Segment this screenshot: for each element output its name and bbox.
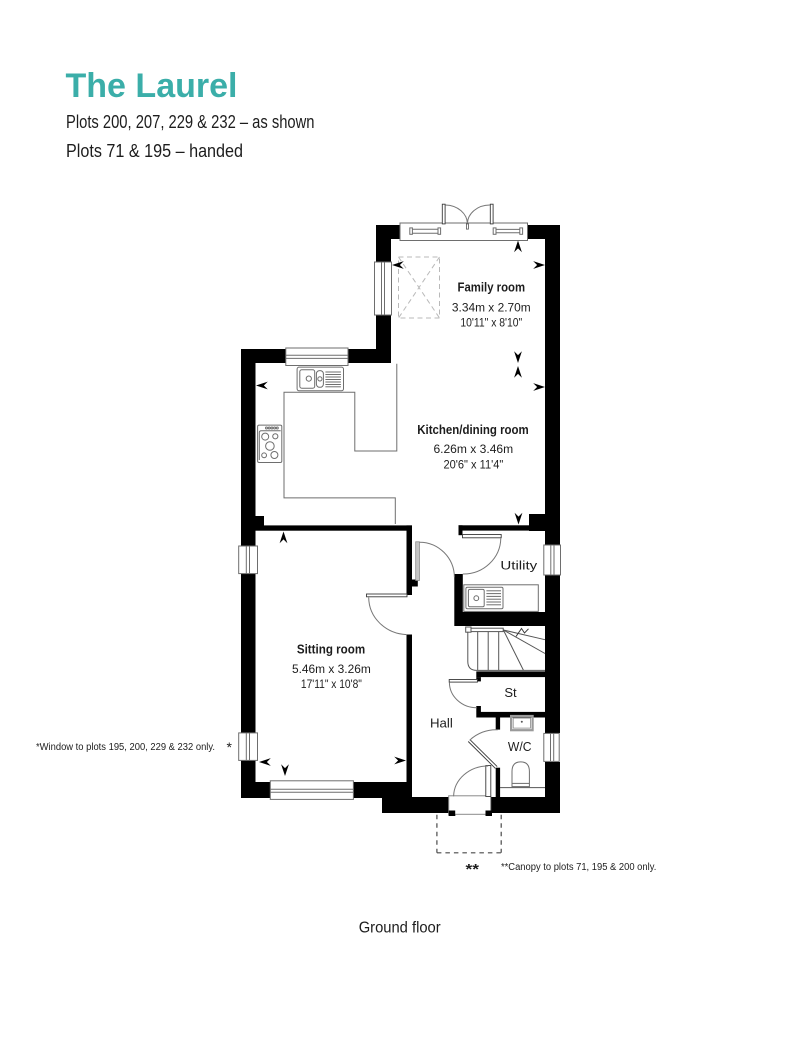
svg-text:20'6" x 11'4": 20'6" x 11'4" [444, 458, 504, 472]
svg-text:Ground floor: Ground floor [359, 920, 441, 937]
svg-text:Family room: Family room [458, 281, 526, 295]
svg-text:Plots 200, 207, 229 & 232 – as: Plots 200, 207, 229 & 232 – as shown [66, 112, 315, 132]
svg-text:Plots 71 & 195 – handed: Plots 71 & 195 – handed [66, 141, 243, 161]
svg-text:10'11" x 8'10": 10'11" x 8'10" [460, 316, 522, 330]
svg-text:Utility: Utility [500, 559, 538, 573]
svg-text:The Laurel: The Laurel [66, 67, 238, 105]
svg-text:3.34m x 2.70m: 3.34m x 2.70m [452, 301, 531, 315]
svg-text:*Window to plots 195, 200, 229: *Window to plots 195, 200, 229 & 232 onl… [36, 742, 215, 753]
svg-text:Hall: Hall [430, 715, 453, 730]
svg-text:17'11" x 10'8": 17'11" x 10'8" [301, 677, 362, 691]
svg-text:*: * [227, 739, 233, 755]
svg-text:Kitchen/dining room: Kitchen/dining room [417, 423, 529, 437]
svg-text:5.46m x 3.26m: 5.46m x 3.26m [292, 662, 371, 676]
svg-text:Sitting room: Sitting room [297, 643, 365, 657]
svg-text:W/C: W/C [508, 739, 532, 754]
svg-text:St: St [504, 685, 517, 700]
svg-text:**Canopy to plots 71, 195 & 20: **Canopy to plots 71, 195 & 200 only. [501, 862, 656, 873]
svg-text:6.26m x 3.46m: 6.26m x 3.46m [433, 442, 513, 456]
svg-text:**: ** [466, 862, 480, 878]
